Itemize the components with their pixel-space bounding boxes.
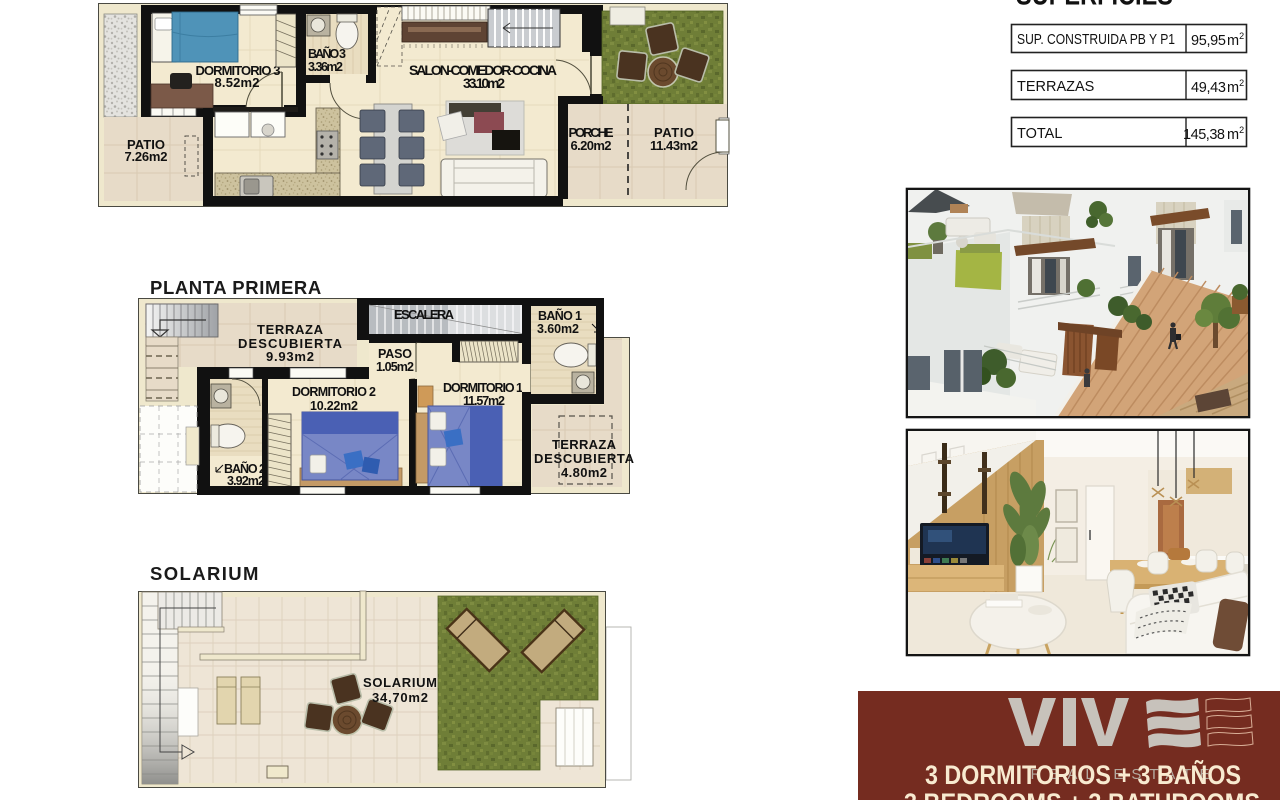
svg-text:TERRAZA: TERRAZA xyxy=(257,322,324,337)
svg-text:8.52m2: 8.52m2 xyxy=(215,75,260,90)
svg-text:TOTAL: TOTAL xyxy=(1017,126,1062,142)
svg-text:DESCUBIERTA: DESCUBIERTA xyxy=(534,451,635,466)
svg-text:3.92m2: 3.92m2 xyxy=(227,474,265,488)
svg-text:49,43m2: 49,43m2 xyxy=(1191,78,1244,96)
svg-text:6.20m2: 6.20m2 xyxy=(571,138,612,153)
svg-text:SOLARIUM: SOLARIUM xyxy=(363,675,437,690)
svg-text:BAÑO 3: BAÑO 3 xyxy=(308,46,346,61)
svg-text:11.43m2: 11.43m2 xyxy=(650,138,698,153)
svg-text:TERRAZAS: TERRAZAS xyxy=(1017,79,1094,95)
svg-text:PASO: PASO xyxy=(378,347,412,361)
svg-text:1.05m2: 1.05m2 xyxy=(376,360,414,374)
svg-text:7.26m2: 7.26m2 xyxy=(125,149,168,164)
svg-text:DORMITORIO 1: DORMITORIO 1 xyxy=(443,381,523,395)
svg-text:PLANTA PRIMERA: PLANTA PRIMERA xyxy=(150,277,322,298)
svg-text:34,70m2: 34,70m2 xyxy=(372,690,428,705)
svg-text:95,95m2: 95,95m2 xyxy=(1191,31,1244,49)
svg-text:3.60m2: 3.60m2 xyxy=(537,322,579,336)
svg-text:DORMITORIO 2: DORMITORIO 2 xyxy=(292,385,376,399)
svg-text:10.22m2: 10.22m2 xyxy=(310,399,358,413)
svg-text:3.36m2: 3.36m2 xyxy=(308,60,343,74)
svg-text:9.93m2: 9.93m2 xyxy=(266,349,314,364)
svg-text:SOLARIUM: SOLARIUM xyxy=(150,563,260,584)
svg-text:4.80m2: 4.80m2 xyxy=(561,465,607,480)
svg-text:145,38m2: 145,38m2 xyxy=(1183,125,1244,143)
svg-text:3 DORMITORIOS + 3 BAÑOS: 3 DORMITORIOS + 3 BAÑOS xyxy=(925,759,1241,790)
svg-text:BAÑO 1: BAÑO 1 xyxy=(538,308,582,323)
svg-text:33.10m2: 33.10m2 xyxy=(463,75,505,91)
svg-text:3 BEDROOMS + 3 BATHROOMS: 3 BEDROOMS + 3 BATHROOMS xyxy=(904,788,1260,800)
svg-text:SUPERFICIES: SUPERFICIES xyxy=(1016,0,1173,12)
svg-text:ESCALERA: ESCALERA xyxy=(394,307,455,322)
svg-text:SUP. CONSTRUIDA PB Y P1: SUP. CONSTRUIDA PB Y P1 xyxy=(1017,32,1175,48)
svg-text:TERRAZA: TERRAZA xyxy=(552,437,617,452)
